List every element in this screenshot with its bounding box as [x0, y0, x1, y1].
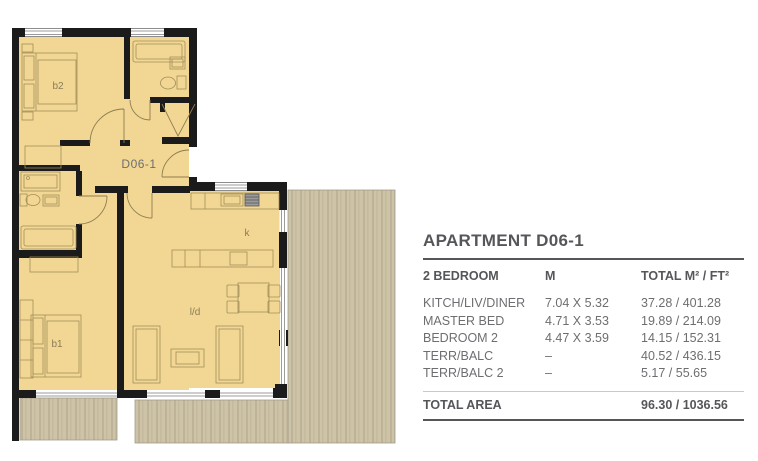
- table-body: KITCH/LIV/DINER 7.04 X 5.32 37.28 / 401.…: [423, 295, 744, 383]
- room-dimensions: 4.71 X 3.53: [545, 313, 641, 331]
- total-spacer: [545, 398, 641, 412]
- glazing-living-right: [280, 268, 286, 384]
- info-panel: APARTMENT D06-1 2 BEDROOM M TOTAL M² / F…: [423, 231, 744, 421]
- room-dimensions: –: [545, 365, 641, 383]
- window-top-left: [25, 29, 62, 37]
- apartment-title: APARTMENT D06-1: [423, 231, 744, 260]
- window-top-right: [131, 29, 164, 37]
- room-area: 19.89 / 214.09: [641, 313, 744, 331]
- room-name: BEDROOM 2: [423, 330, 545, 348]
- entry-opening: [189, 147, 197, 177]
- total-label: TOTAL AREA: [423, 398, 545, 412]
- room-name: MASTER BED: [423, 313, 545, 331]
- room-area: 37.28 / 401.28: [641, 295, 744, 313]
- room-name: TERR/BALC: [423, 348, 545, 366]
- terrace-bottom: [135, 400, 288, 443]
- total-row: TOTAL AREA 96.30 / 1036.56: [423, 392, 744, 421]
- table-row: TERR/BALC 2 – 5.17 / 55.65: [423, 365, 744, 383]
- room-area: 40.52 / 436.15: [641, 348, 744, 366]
- table-row: TERR/BALC – 40.52 / 436.15: [423, 348, 744, 366]
- column-header-area: TOTAL M² / FT²: [641, 269, 744, 283]
- table-header: 2 BEDROOM M TOTAL M² / FT²: [423, 260, 744, 283]
- glazing-bottom: [36, 391, 273, 398]
- bedroom1-label: b1: [51, 339, 63, 350]
- window-kitchen-right: [280, 210, 287, 232]
- table-row: BEDROOM 2 4.47 X 3.59 14.15 / 152.31: [423, 330, 744, 348]
- total-area-value: 96.30 / 1036.56: [641, 398, 744, 412]
- window-kitchen: [215, 183, 247, 191]
- column-header-dimensions: M: [545, 269, 641, 283]
- room-area: 5.17 / 55.65: [641, 365, 744, 383]
- terrace-bottom-left: [20, 398, 117, 440]
- page: b2 b1 k l/d D06-1 APARTMENT D06-1 2 BEDR…: [0, 0, 758, 461]
- table-row: KITCH/LIV/DINER 7.04 X 5.32 37.28 / 401.…: [423, 295, 744, 313]
- column-header-rooms: 2 BEDROOM: [423, 269, 545, 283]
- room-name: KITCH/LIV/DINER: [423, 295, 545, 313]
- room-dimensions: 4.47 X 3.59: [545, 330, 641, 348]
- room-name: TERR/BALC 2: [423, 365, 545, 383]
- floor-plan: b2 b1 k l/d D06-1: [0, 0, 410, 461]
- room-area: 14.15 / 152.31: [641, 330, 744, 348]
- terrace-right: [288, 190, 395, 443]
- bedroom2-label: b2: [52, 81, 64, 92]
- room-dimensions: 7.04 X 5.32: [545, 295, 641, 313]
- room-dimensions: –: [545, 348, 641, 366]
- table-row: MASTER BED 4.71 X 3.53 19.89 / 214.09: [423, 313, 744, 331]
- living-diner-label: l/d: [190, 307, 201, 318]
- unit-label: D06-1: [121, 157, 156, 171]
